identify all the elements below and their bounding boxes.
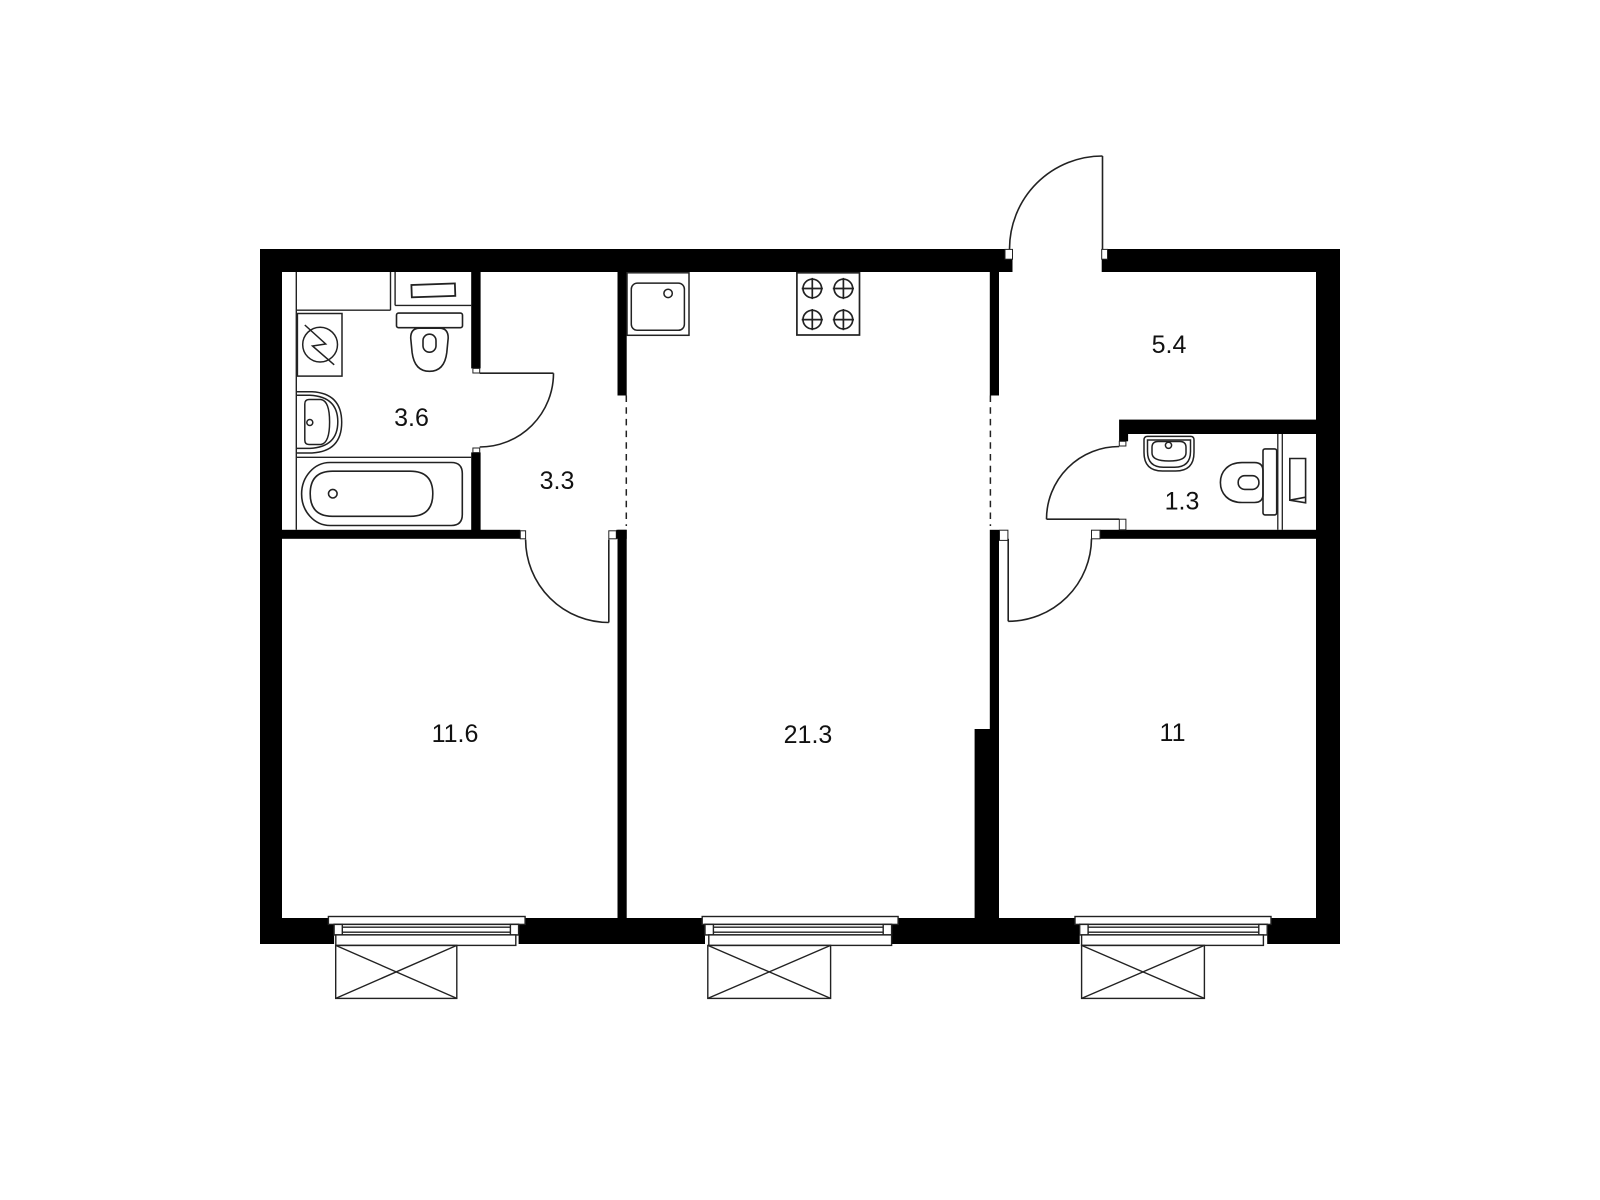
svg-text:3.6: 3.6 <box>394 404 429 432</box>
svg-text:1.3: 1.3 <box>1165 487 1200 515</box>
svg-text:11.6: 11.6 <box>432 720 479 748</box>
svg-text:5.4: 5.4 <box>1152 331 1187 359</box>
svg-text:21.3: 21.3 <box>784 721 833 749</box>
svg-text:11: 11 <box>1160 719 1186 747</box>
svg-text:3.3: 3.3 <box>540 467 575 495</box>
